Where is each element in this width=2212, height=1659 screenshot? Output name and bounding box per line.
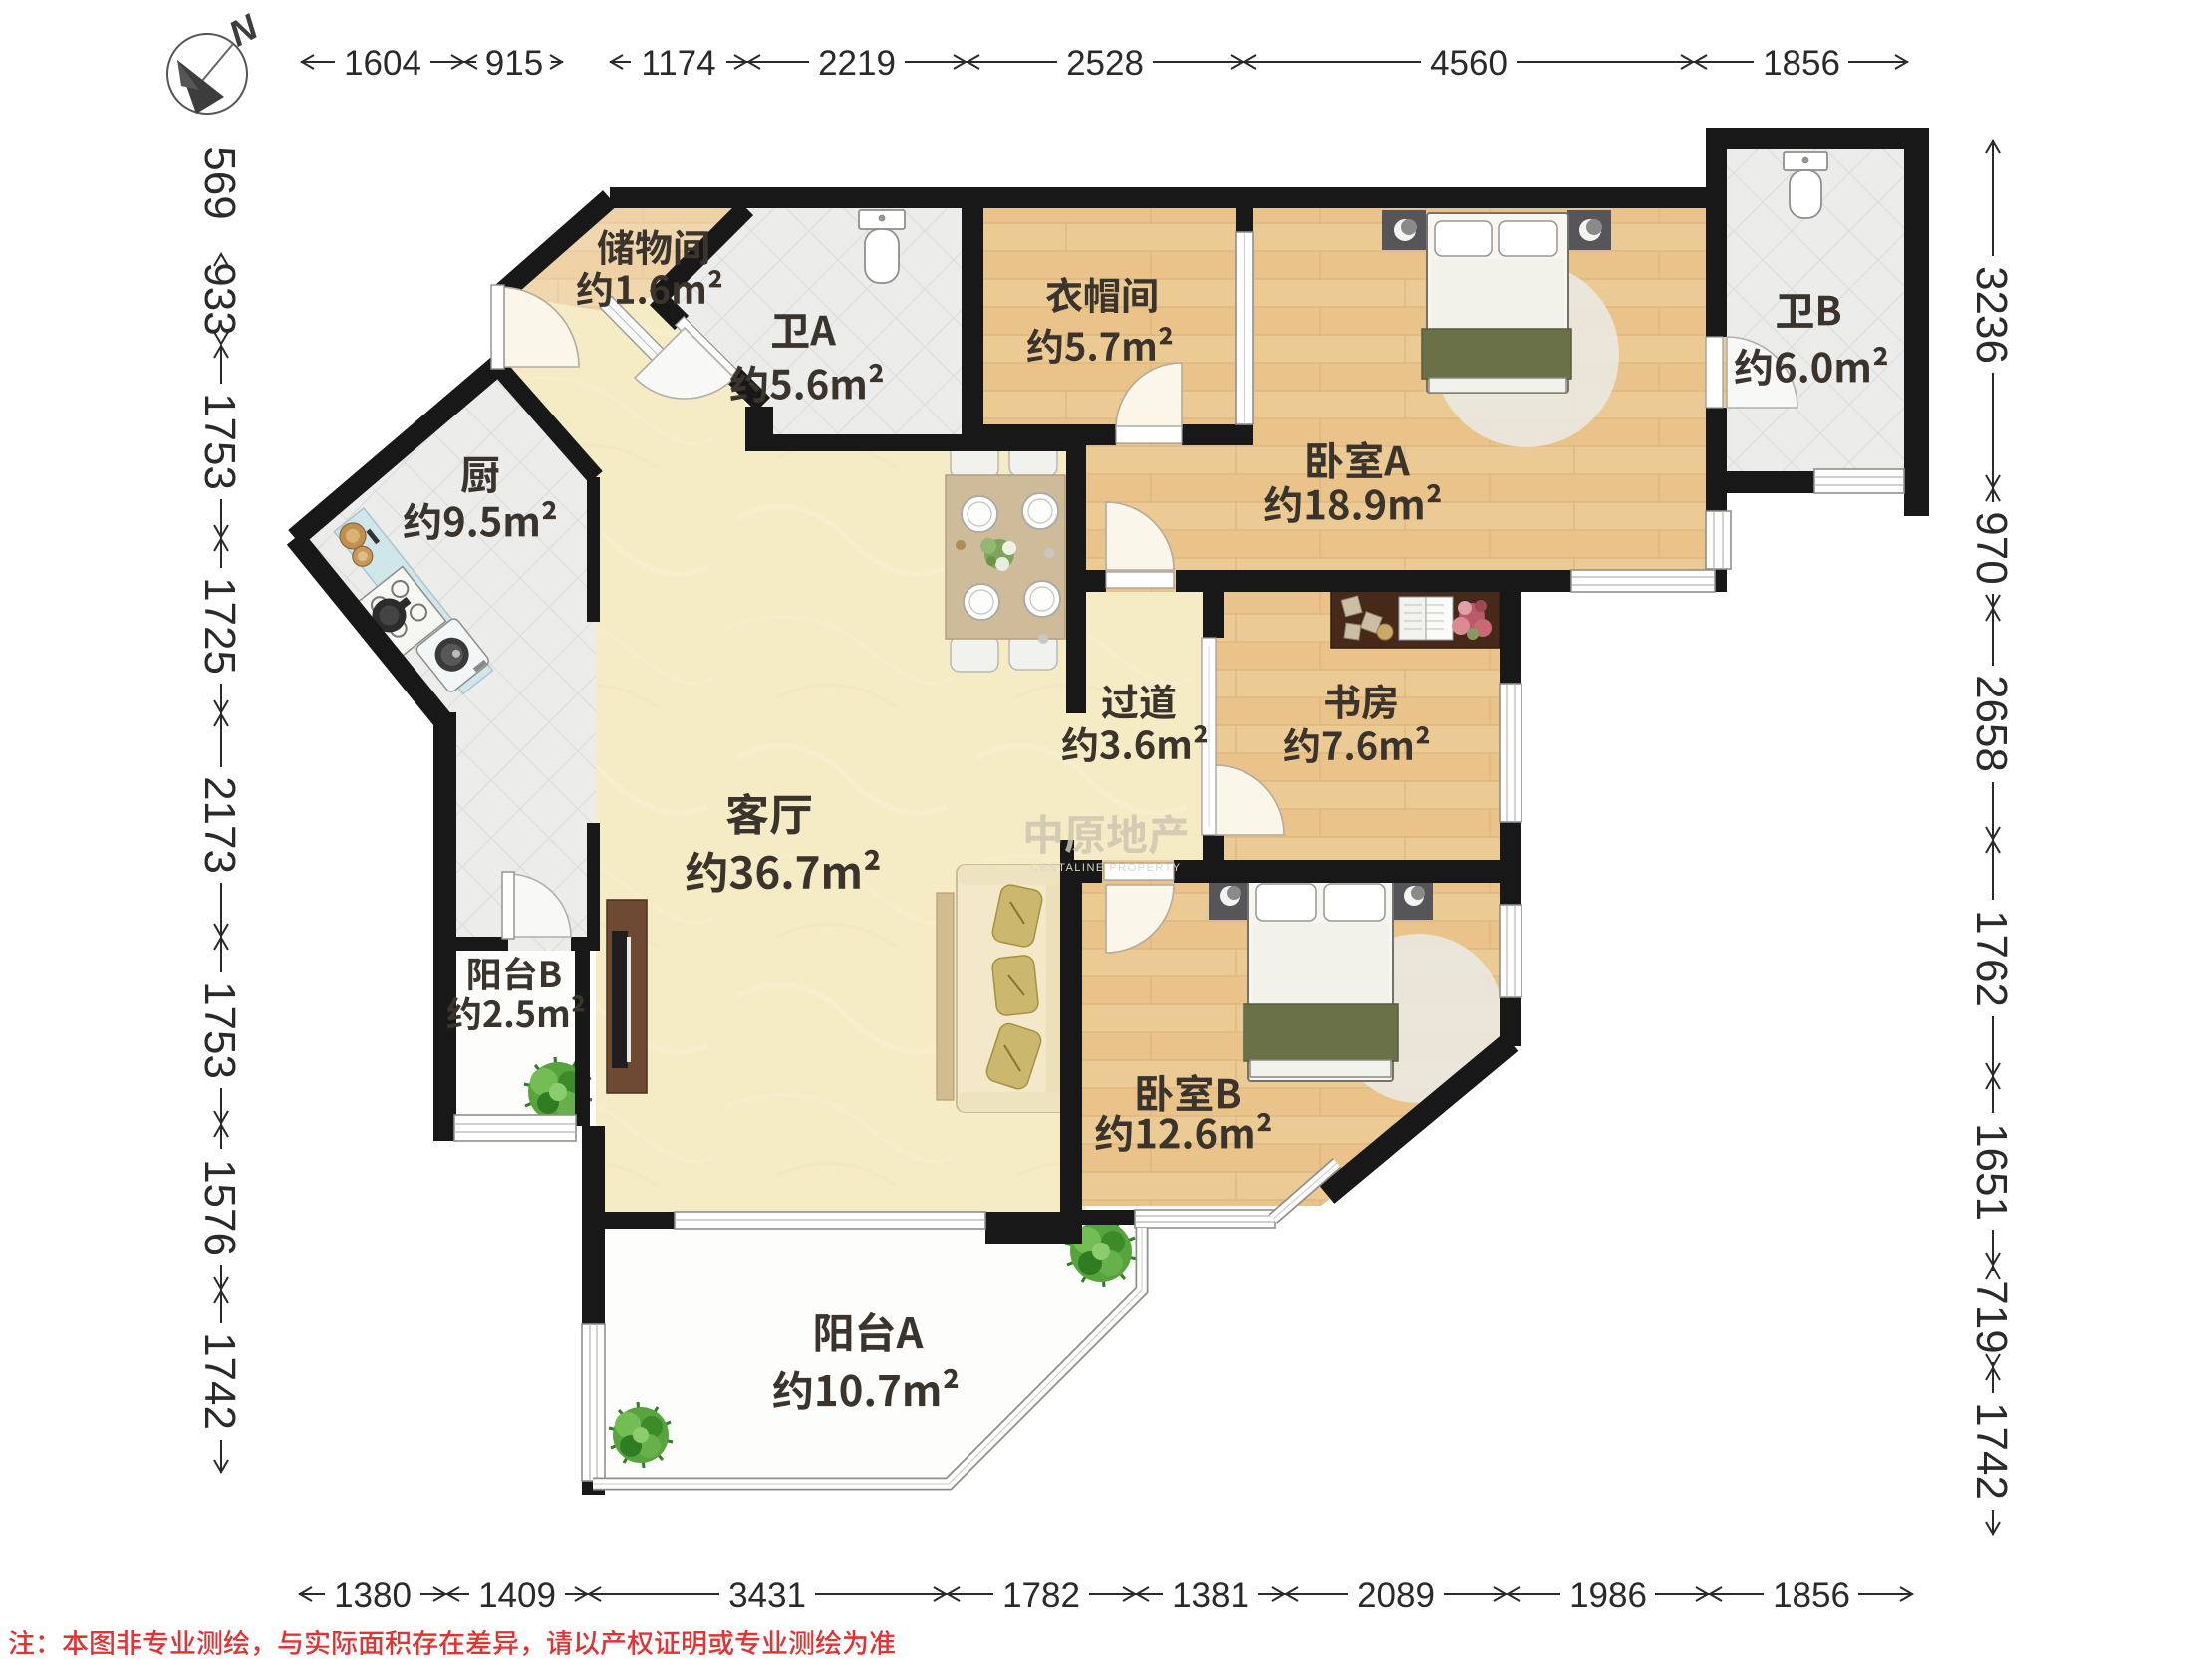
svg-text:1753: 1753: [195, 393, 244, 490]
svg-text:1725: 1725: [195, 577, 244, 675]
svg-text:1651: 1651: [1967, 1123, 2016, 1221]
svg-text:1380: 1380: [334, 1576, 412, 1615]
svg-text:2658: 2658: [1967, 675, 2016, 772]
svg-text:3236: 3236: [1967, 266, 2016, 364]
svg-text:915: 915: [485, 44, 543, 83]
svg-text:1381: 1381: [1172, 1576, 1249, 1615]
svg-text:1576: 1576: [195, 1159, 244, 1256]
svg-text:2528: 2528: [1066, 44, 1144, 83]
svg-text:2173: 2173: [195, 776, 244, 874]
svg-text:1409: 1409: [478, 1576, 556, 1615]
svg-text:1174: 1174: [641, 44, 715, 83]
svg-text:2089: 2089: [1357, 1576, 1435, 1615]
svg-text:1753: 1753: [195, 981, 244, 1079]
svg-text:1604: 1604: [344, 44, 421, 83]
svg-text:1742: 1742: [195, 1332, 244, 1430]
svg-text:1742: 1742: [1967, 1402, 2016, 1500]
svg-text:970: 970: [1967, 511, 2016, 584]
svg-text:1782: 1782: [1002, 1576, 1080, 1615]
svg-text:3431: 3431: [728, 1576, 806, 1615]
svg-text:1986: 1986: [1569, 1576, 1647, 1615]
svg-text:4560: 4560: [1430, 44, 1508, 83]
svg-text:CENTALINE PROPERTY: CENTALINE PROPERTY: [1030, 862, 1181, 874]
svg-text:2219: 2219: [818, 44, 896, 83]
svg-text:1856: 1856: [1773, 1576, 1850, 1615]
svg-text:1856: 1856: [1763, 44, 1840, 83]
svg-text:1762: 1762: [1967, 910, 2016, 1007]
svg-text:933: 933: [195, 262, 244, 335]
svg-text:569: 569: [195, 146, 244, 219]
svg-text:719: 719: [1967, 1280, 2016, 1353]
